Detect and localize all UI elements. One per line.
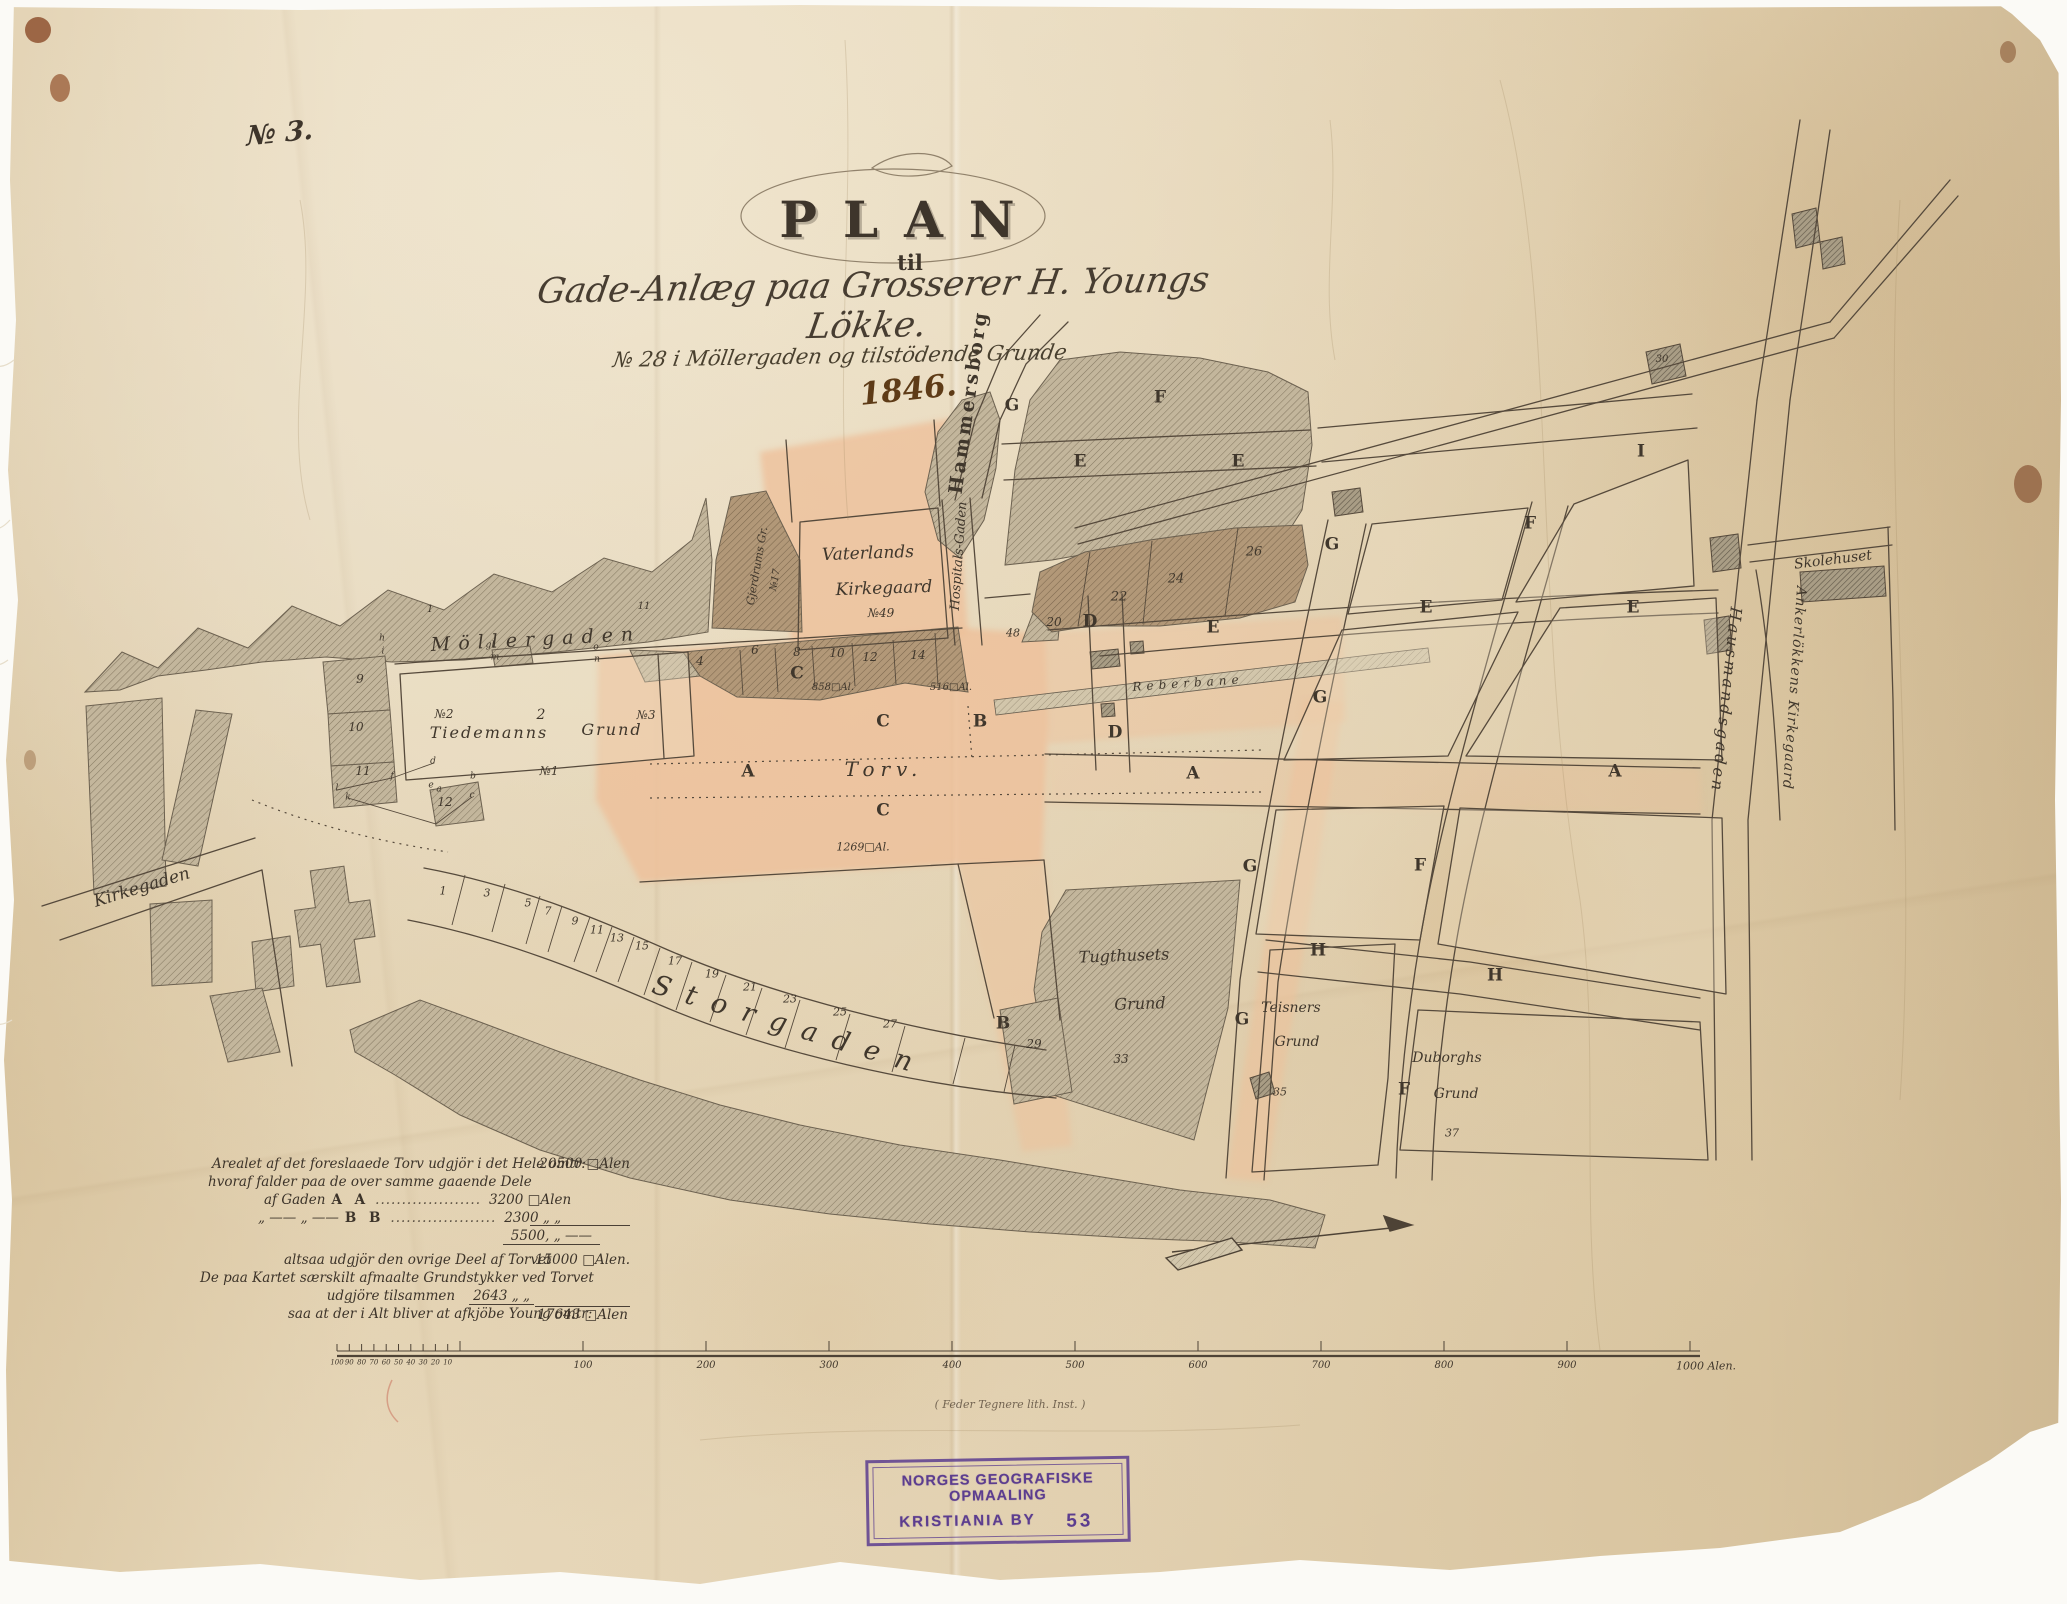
area-row: saa at der i Alt bliver at afkjöbe Young…: [200, 1306, 630, 1324]
map-label: 50: [394, 1360, 403, 1367]
area-row: 5500, „ ——: [200, 1228, 630, 1249]
stamp-line1: NORGES GEOGRAFISKE OPMAALING: [869, 1470, 1128, 1506]
map-label: Kirkegaden: [92, 865, 192, 910]
row-text: udgjöre tilsammen: [327, 1288, 455, 1304]
area-row: af GadenA A....................3200 □Ale…: [200, 1192, 630, 1210]
map-label: 11: [590, 925, 604, 936]
map-label: 35: [1273, 1087, 1287, 1098]
map-label: №49: [868, 607, 895, 619]
map-label: 12: [862, 651, 877, 663]
area-row: altsaa udgjör den ovrige Deel af Torvet1…: [200, 1252, 630, 1270]
map-label: №17: [769, 568, 783, 592]
area-row: De paa Kartet særskilt afmaalte Grundsty…: [200, 1270, 630, 1288]
map-label: m: [491, 654, 500, 663]
map-label: G: [1243, 859, 1258, 876]
map-label: Möllergaden: [430, 625, 641, 655]
map-label: F: [1524, 516, 1536, 533]
map-label: A: [1186, 766, 1199, 783]
map-label: 100: [573, 1361, 592, 1371]
row-text: De paa Kartet særskilt afmaalte Grundsty…: [200, 1270, 594, 1286]
map-label: A: [741, 764, 754, 781]
map-label: 7: [545, 906, 552, 917]
map-label: Tiedemanns: [430, 725, 549, 741]
map-label: G: [1005, 398, 1020, 415]
stamp-city: KRISTIANIA BY: [899, 1511, 1036, 1535]
map-label: 23: [783, 994, 797, 1005]
map-title: PLAN: [735, 190, 1085, 249]
map-label: 600: [1188, 1361, 1207, 1371]
map-label: 48: [1006, 628, 1020, 639]
row-value: 5500, „ ——: [503, 1228, 600, 1245]
row-leader: ....................: [390, 1210, 496, 1226]
map-label: 40: [406, 1360, 415, 1367]
map-label: 9: [572, 916, 579, 927]
map-label: 30: [419, 1360, 428, 1367]
map-label: 20: [431, 1360, 440, 1367]
map-label: 8: [793, 646, 801, 658]
map-label: 500: [1065, 1361, 1084, 1371]
map-label: f: [390, 773, 393, 782]
map-label: Teisners: [1261, 1001, 1320, 1015]
map-label: gl: [486, 642, 495, 651]
map-label: 2: [537, 708, 546, 722]
map-label: 9: [356, 673, 364, 685]
map-label: 516□Al.: [930, 683, 972, 693]
map-label: F: [1398, 1082, 1410, 1099]
map-label: 25: [833, 1007, 847, 1018]
map-label: 17: [668, 956, 682, 967]
map-label: Kirkegaard: [835, 579, 932, 599]
map-label: 10: [829, 647, 844, 659]
map-label: 700: [1311, 1361, 1330, 1371]
map-label: 1: [427, 605, 433, 615]
map-label: 1: [440, 886, 447, 897]
map-label: 1000 Alen.: [1676, 1361, 1736, 1372]
map-label: 20: [1046, 616, 1061, 628]
map-label: G: [1325, 537, 1340, 554]
row-value: 2643 „ „: [469, 1288, 534, 1305]
map-label: c: [469, 792, 474, 801]
map-label: Skolehuset: [1793, 548, 1873, 571]
sum-rule: [530, 1225, 630, 1226]
map-label: 12: [437, 796, 452, 808]
map-label: 22: [1111, 591, 1128, 604]
map-label: F: [1414, 858, 1426, 875]
map-label: Ankerlökkens Kirkegaard: [1780, 586, 1808, 791]
map-label: 19: [705, 969, 719, 980]
map-label: 60: [382, 1360, 391, 1367]
area-row: udgjöre tilsammen2643 „ „: [200, 1288, 630, 1306]
map-label: a: [436, 786, 441, 795]
map-label: Grund: [1434, 1087, 1479, 1101]
map-label: e: [428, 782, 433, 791]
map-label: Grund: [1275, 1035, 1320, 1049]
map-label: H: [1310, 943, 1326, 960]
map-label: l: [336, 785, 339, 794]
map-label: Duborghs: [1412, 1051, 1482, 1065]
map-label: 27: [883, 1019, 897, 1030]
map-label: Hospitals-Gaden: [949, 501, 970, 611]
stamp-line2: KRISTIANIA BY 53: [869, 1502, 1127, 1536]
map-label: i: [382, 648, 385, 657]
map-label: o: [593, 644, 598, 653]
map-label: 6: [751, 644, 759, 656]
map-label: №1: [540, 765, 559, 777]
map-label: 14: [910, 649, 925, 661]
map-label: 30: [1656, 355, 1669, 365]
map-label: Hausmandsgaden: [1708, 606, 1743, 794]
lithographer-note: ( Feder Tegnere lith. Inst. ): [925, 1398, 1095, 1411]
map-label: 1269□Al.: [836, 842, 889, 853]
row-text: Arealet af det foreslaaede Torv udgjör i…: [212, 1156, 586, 1172]
row-key: B B: [345, 1210, 385, 1226]
row-value: 15000 □Alen.: [535, 1252, 630, 1268]
row-text: hvoraf falder paa de over samme gaaende …: [208, 1174, 532, 1190]
map-label: d: [430, 758, 436, 767]
map-label: n: [594, 656, 600, 665]
row-text: af Gaden: [264, 1192, 326, 1208]
map-label: 26: [1246, 546, 1263, 559]
map-label: H: [1487, 968, 1503, 985]
map-label: B: [996, 1016, 1010, 1033]
map-label: 80: [357, 1360, 366, 1367]
map-label: 13: [610, 933, 624, 944]
row-value: 17643 □Alen: [535, 1306, 630, 1323]
map-sheet: MöllergadenStorgadenKirkegadenHammersbor…: [0, 0, 2067, 1604]
map-label: C: [876, 714, 890, 731]
row-leader: ....................: [375, 1192, 481, 1208]
map-label: I: [1637, 444, 1645, 461]
archive-stamp: NORGES GEOGRAFISKE OPMAALING KRISTIANIA …: [865, 1456, 1130, 1547]
map-label: Torv.: [845, 759, 924, 779]
area-row: Arealet af det foreslaaede Torv udgjör i…: [200, 1156, 630, 1174]
map-label: 21: [743, 982, 757, 993]
map-label: 90: [345, 1360, 354, 1367]
row-value: 3200 □Alen: [489, 1192, 571, 1208]
area-computation-table: Arealet af det foreslaaede Torv udgjör i…: [200, 1156, 630, 1324]
map-label: G: [1235, 1012, 1250, 1029]
map-label: Vaterlands: [822, 544, 915, 564]
map-label: 4: [696, 655, 704, 667]
map-label: E: [1627, 600, 1640, 617]
map-label: E: [1420, 600, 1433, 617]
map-label: Grund: [1114, 995, 1166, 1013]
map-label: B: [973, 714, 987, 731]
row-key: A A: [332, 1192, 370, 1208]
map-label: 100: [330, 1360, 343, 1367]
area-row: hvoraf falder paa de over samme gaaende …: [200, 1174, 630, 1192]
map-label: Gjerdrums Gr.: [745, 526, 770, 606]
map-label: E: [1207, 620, 1220, 637]
map-label: 300: [819, 1361, 838, 1371]
map-label: 10: [443, 1360, 452, 1367]
map-label: 3: [484, 888, 491, 899]
map-label: A: [1608, 764, 1621, 781]
stamp-number: 53: [1066, 1510, 1094, 1532]
map-label: 37: [1445, 1128, 1459, 1139]
map-label: F: [1154, 390, 1166, 407]
map-label: 24: [1168, 573, 1185, 586]
map-label: E: [1074, 454, 1087, 471]
map-label: №2: [435, 708, 454, 720]
map-label: Tugthusets: [1078, 946, 1169, 965]
map-label: 5: [525, 898, 532, 909]
row-value: 20500 □Alen: [539, 1156, 630, 1172]
map-label: 15: [635, 941, 649, 952]
map-label: h: [379, 635, 385, 644]
map-label: Reberbane: [1132, 673, 1244, 693]
map-label: 400: [942, 1361, 961, 1371]
row-value: 2300 „ „: [504, 1210, 561, 1226]
map-label: D: [1083, 614, 1098, 631]
row-text: altsaa udgjör den ovrige Deel af Torvet: [284, 1252, 552, 1268]
map-label: 11: [638, 602, 651, 612]
map-label: 70: [369, 1360, 378, 1367]
map-label: D: [1108, 725, 1123, 742]
map-label: b: [470, 773, 476, 782]
map-label: 800: [1434, 1361, 1453, 1371]
map-label: C: [876, 803, 890, 820]
map-label: 10: [348, 721, 363, 733]
map-label: G: [1313, 690, 1328, 707]
map-label: k: [345, 794, 350, 803]
map-label: 11: [355, 765, 370, 777]
map-label: Grund: [581, 722, 642, 738]
map-label: 200: [696, 1361, 715, 1371]
row-text: „ —— „ ——: [258, 1210, 339, 1226]
map-label: 33: [1113, 1053, 1128, 1065]
map-label: E: [1232, 454, 1245, 471]
map-label: 29: [1026, 1038, 1041, 1050]
map-label: 900: [1557, 1361, 1576, 1371]
map-label: 858□Al.: [812, 683, 854, 693]
map-label: C: [790, 666, 804, 683]
